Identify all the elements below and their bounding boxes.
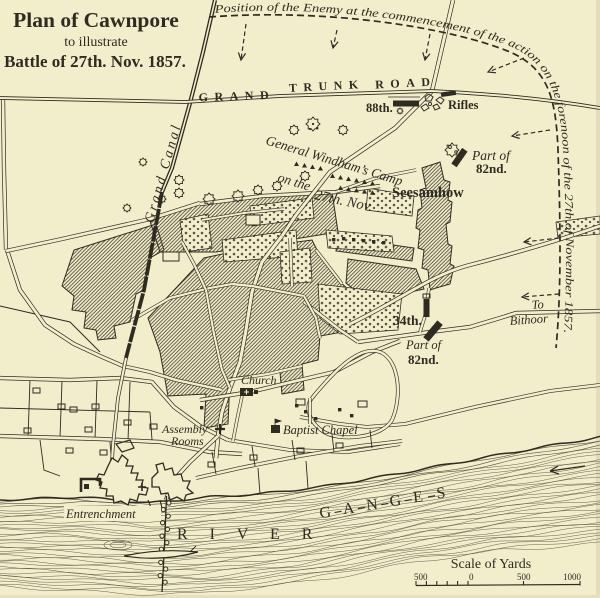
svg-text:E: E [412,488,424,506]
svg-text:Battle of 27th. Nov. 1857.: Battle of 27th. Nov. 1857. [4,52,186,71]
svg-text:S: S [436,485,447,503]
svg-text:G: G [319,504,333,522]
svg-text:Bithoor: Bithoor [509,311,548,328]
svg-text:A: A [342,500,356,518]
svg-text:To: To [531,297,544,312]
svg-text:1000: 1000 [563,572,582,582]
svg-text:82nd.: 82nd. [408,352,439,367]
svg-text:Church: Church [241,373,277,387]
svg-text:500: 500 [517,572,531,582]
svg-text:Entrenchment: Entrenchment [65,507,136,521]
svg-text:88th.: 88th. [366,101,393,115]
svg-text:R I V E R: R I V E R [177,526,321,543]
svg-text:Rifles: Rifles [448,98,479,112]
svg-text:N: N [365,496,379,514]
svg-text:Baptist Chapel: Baptist Chapel [283,423,358,437]
svg-text:Part of: Part of [405,338,443,352]
svg-text:500: 500 [414,572,428,582]
svg-text:Rooms: Rooms [170,434,204,448]
svg-text:Plan of Cawnpore: Plan of Cawnpore [13,8,179,32]
svg-text:34th.: 34th. [393,313,422,328]
svg-text:Scale of Yards: Scale of Yards [451,557,532,572]
svg-text:82nd.: 82nd. [476,161,507,176]
svg-text:to illustrate: to illustrate [64,35,127,50]
svg-text:GRAND: GRAND [198,88,275,105]
svg-text:Seesamhow: Seesamhow [392,185,464,201]
svg-text:0: 0 [469,572,474,582]
svg-text:G: G [389,492,403,510]
